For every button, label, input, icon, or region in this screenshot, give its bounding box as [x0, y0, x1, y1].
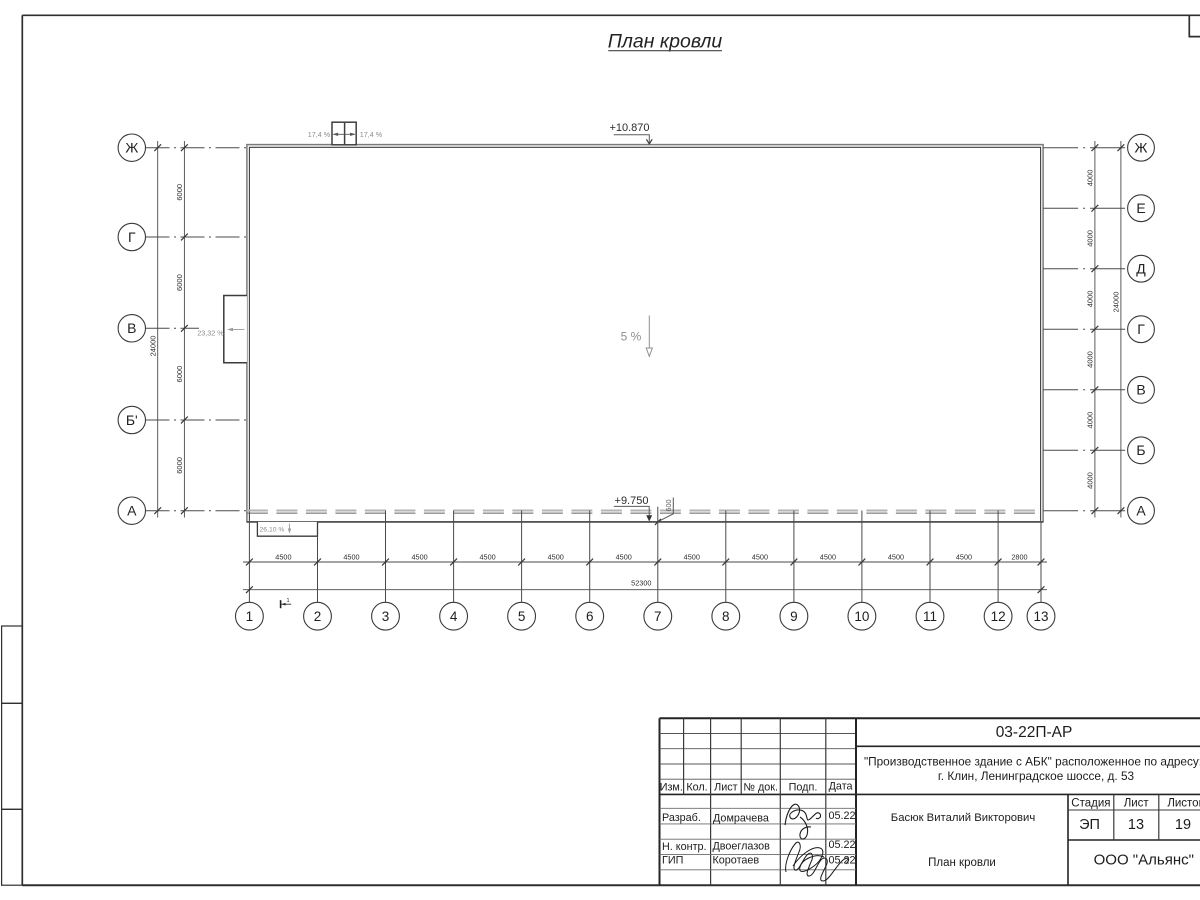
svg-text:05.22: 05.22 — [829, 839, 856, 851]
svg-text:4500: 4500 — [616, 553, 632, 562]
svg-text:Ж: Ж — [125, 140, 138, 156]
svg-text:№ док.: № док. — [743, 782, 778, 794]
svg-text:Дата: Дата — [829, 781, 853, 793]
svg-text:А: А — [1136, 503, 1146, 519]
svg-text:Разраб.: Разраб. — [662, 812, 701, 824]
svg-text:Б: Б — [1136, 442, 1145, 458]
svg-text:Домрачева: Домрачева — [713, 813, 769, 825]
svg-text:17,4 %: 17,4 % — [308, 130, 331, 139]
svg-text:Ж: Ж — [1135, 140, 1148, 156]
svg-text:Г: Г — [128, 229, 136, 245]
svg-text:В: В — [127, 320, 136, 336]
svg-text:17,4 %: 17,4 % — [360, 130, 383, 139]
svg-text:ЭП: ЭП — [1079, 817, 1100, 833]
svg-text:6000: 6000 — [175, 184, 184, 201]
svg-text:12: 12 — [991, 609, 1006, 624]
svg-text:4500: 4500 — [684, 553, 700, 562]
svg-text:4000: 4000 — [1086, 170, 1095, 187]
svg-text:4000: 4000 — [1086, 412, 1095, 429]
svg-text:6000: 6000 — [175, 274, 184, 291]
svg-text:4500: 4500 — [888, 553, 904, 562]
svg-text:52300: 52300 — [631, 579, 651, 588]
svg-text:Басюк Виталий Викторович: Басюк Виталий Викторович — [891, 812, 1036, 824]
svg-text:05.22: 05.22 — [829, 810, 856, 822]
svg-text:5: 5 — [518, 609, 526, 624]
svg-text:2: 2 — [314, 609, 322, 624]
svg-text:План кровли: План кровли — [608, 31, 723, 53]
svg-text:03-22П-АР: 03-22П-АР — [996, 724, 1073, 741]
svg-text:1: 1 — [246, 609, 254, 624]
svg-text:В: В — [1136, 382, 1145, 398]
svg-text:6: 6 — [586, 609, 594, 624]
svg-text:4500: 4500 — [479, 553, 495, 562]
svg-text:2800: 2800 — [1011, 553, 1027, 562]
svg-text:4500: 4500 — [752, 553, 768, 562]
svg-text:4500: 4500 — [956, 553, 972, 562]
svg-text:Стадия: Стадия — [1071, 797, 1110, 809]
svg-text:4500: 4500 — [275, 553, 291, 562]
svg-text:8: 8 — [722, 609, 730, 624]
svg-text:24000: 24000 — [1112, 292, 1121, 313]
svg-text:Подп.: Подп. — [789, 782, 818, 794]
svg-text:г. Клин, Ленинградское шоссе,: г. Клин, Ленинградское шоссе, д. 53 — [938, 769, 1135, 783]
svg-text:Коротаев: Коротаев — [713, 855, 760, 867]
svg-text:А: А — [127, 503, 137, 519]
svg-text:Кол.: Кол. — [686, 782, 707, 794]
svg-text:Лист: Лист — [1124, 797, 1150, 809]
svg-text:Изм.: Изм. — [660, 782, 683, 794]
svg-text:4000: 4000 — [1086, 472, 1095, 489]
svg-text:3: 3 — [382, 609, 390, 624]
svg-text:Лист: Лист — [714, 782, 738, 794]
svg-text:"Производственное здание с АБК: "Производственное здание с АБК" располож… — [864, 754, 1200, 768]
svg-text:6000: 6000 — [175, 457, 184, 474]
svg-text:13: 13 — [1128, 817, 1144, 833]
svg-text:6000: 6000 — [175, 366, 184, 383]
svg-text:Б': Б' — [126, 412, 138, 428]
svg-text:24000: 24000 — [148, 336, 157, 357]
svg-text:4000: 4000 — [1086, 230, 1095, 247]
svg-text:Листов: Листов — [1167, 797, 1200, 809]
svg-text:7: 7 — [654, 609, 662, 624]
svg-text:600: 600 — [664, 500, 673, 512]
svg-text:23,32 %: 23,32 % — [197, 328, 224, 337]
svg-text:19: 19 — [1175, 817, 1191, 833]
svg-text:4000: 4000 — [1086, 291, 1095, 308]
svg-text:4500: 4500 — [548, 553, 564, 562]
svg-text:ООО "Альянс": ООО "Альянс" — [1094, 852, 1194, 869]
svg-text:4500: 4500 — [411, 553, 427, 562]
svg-text:5 %: 5 % — [621, 330, 642, 344]
svg-text:1: 1 — [286, 598, 289, 604]
svg-text:9: 9 — [790, 609, 798, 624]
svg-text:4: 4 — [450, 609, 458, 624]
svg-text:Д: Д — [1136, 261, 1146, 277]
svg-text:План кровли: План кровли — [928, 857, 996, 869]
svg-text:4000: 4000 — [1086, 351, 1095, 368]
svg-text:+10.870: +10.870 — [609, 122, 649, 134]
svg-text:ГИП: ГИП — [662, 855, 683, 867]
svg-text:+9.750: +9.750 — [615, 495, 649, 507]
svg-text:4500: 4500 — [820, 553, 836, 562]
svg-text:Н. контр.: Н. контр. — [662, 841, 707, 853]
svg-text:13: 13 — [1033, 609, 1048, 624]
svg-text:4500: 4500 — [343, 553, 359, 562]
svg-text:11: 11 — [923, 609, 937, 624]
svg-text:10: 10 — [854, 609, 869, 624]
svg-text:Двоеглазов: Двоеглазов — [713, 841, 771, 853]
svg-text:Е: Е — [1136, 200, 1145, 216]
svg-text:26,10 %: 26,10 % — [260, 526, 285, 533]
svg-text:Г: Г — [1137, 321, 1145, 337]
